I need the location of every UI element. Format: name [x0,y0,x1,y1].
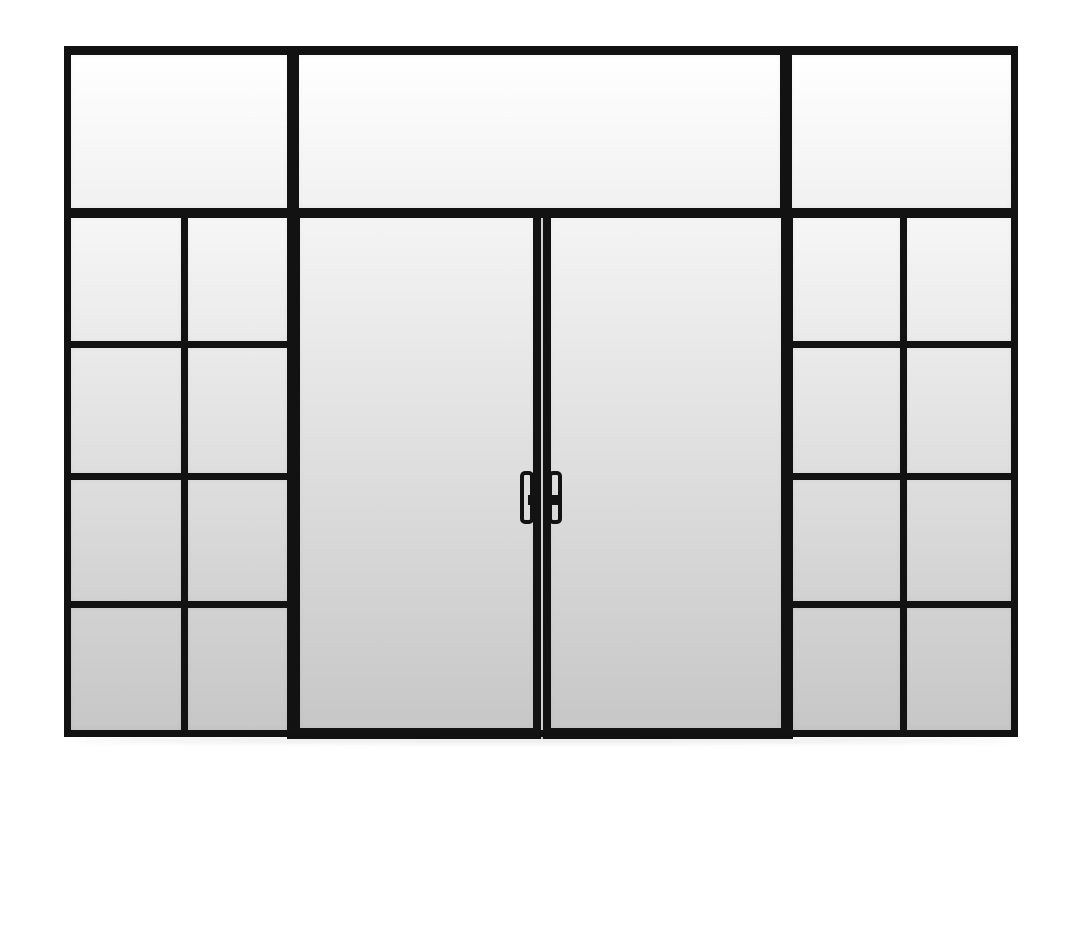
left-sidelite-pane-r2c2 [188,348,287,473]
right-sidelite-pane-r1c1 [793,218,900,341]
right-door-glass [551,218,781,728]
left-door-left-stile [287,218,300,739]
right-sidelite-pane-r3c2 [907,480,1011,601]
left-sidelite-pane-r2c1 [71,348,181,473]
right-sidelite-grid [793,218,1011,730]
right-door-right-stile [781,218,793,739]
frame-left-jamb [64,46,71,737]
right-door-handle-latch [552,495,560,505]
left-sidelite-pane-r3c1 [71,480,181,601]
transom-bottom-rail [64,208,1018,218]
left-door-meeting-stile [533,218,541,739]
right-sidelite-pane-r1c2 [907,218,1011,341]
left-sidelite-pane-r1c1 [71,218,181,341]
transom-pane-right [792,55,1011,208]
transom-mullion-left [287,55,299,208]
transom-pane-left [71,55,287,208]
frame-top-rail [64,46,1018,55]
right-sidelite-pane-r2c1 [793,348,900,473]
frame-bottom-rail [64,730,1018,737]
frame-right-jamb [1011,46,1018,737]
left-door-glass [300,218,533,728]
right-sidelite-pane-r4c1 [793,608,900,730]
transom-mullion-right [780,55,792,208]
right-sidelite-pane-r4c2 [907,608,1011,730]
left-sidelite-grid [71,218,287,730]
left-sidelite-pane-r3c2 [188,480,287,601]
floor-shadow [74,737,1012,743]
right-sidelite-pane-r3c1 [793,480,900,601]
left-sidelite-pane-r1c2 [188,218,287,341]
right-sidelite-pane-r2c2 [907,348,1011,473]
left-door-handle-latch [528,495,536,505]
transom-pane-center [299,55,780,208]
left-sidelite-pane-r4c1 [71,608,181,730]
steel-glass-door-product-image [0,0,1069,934]
left-sidelite-pane-r4c2 [188,608,287,730]
